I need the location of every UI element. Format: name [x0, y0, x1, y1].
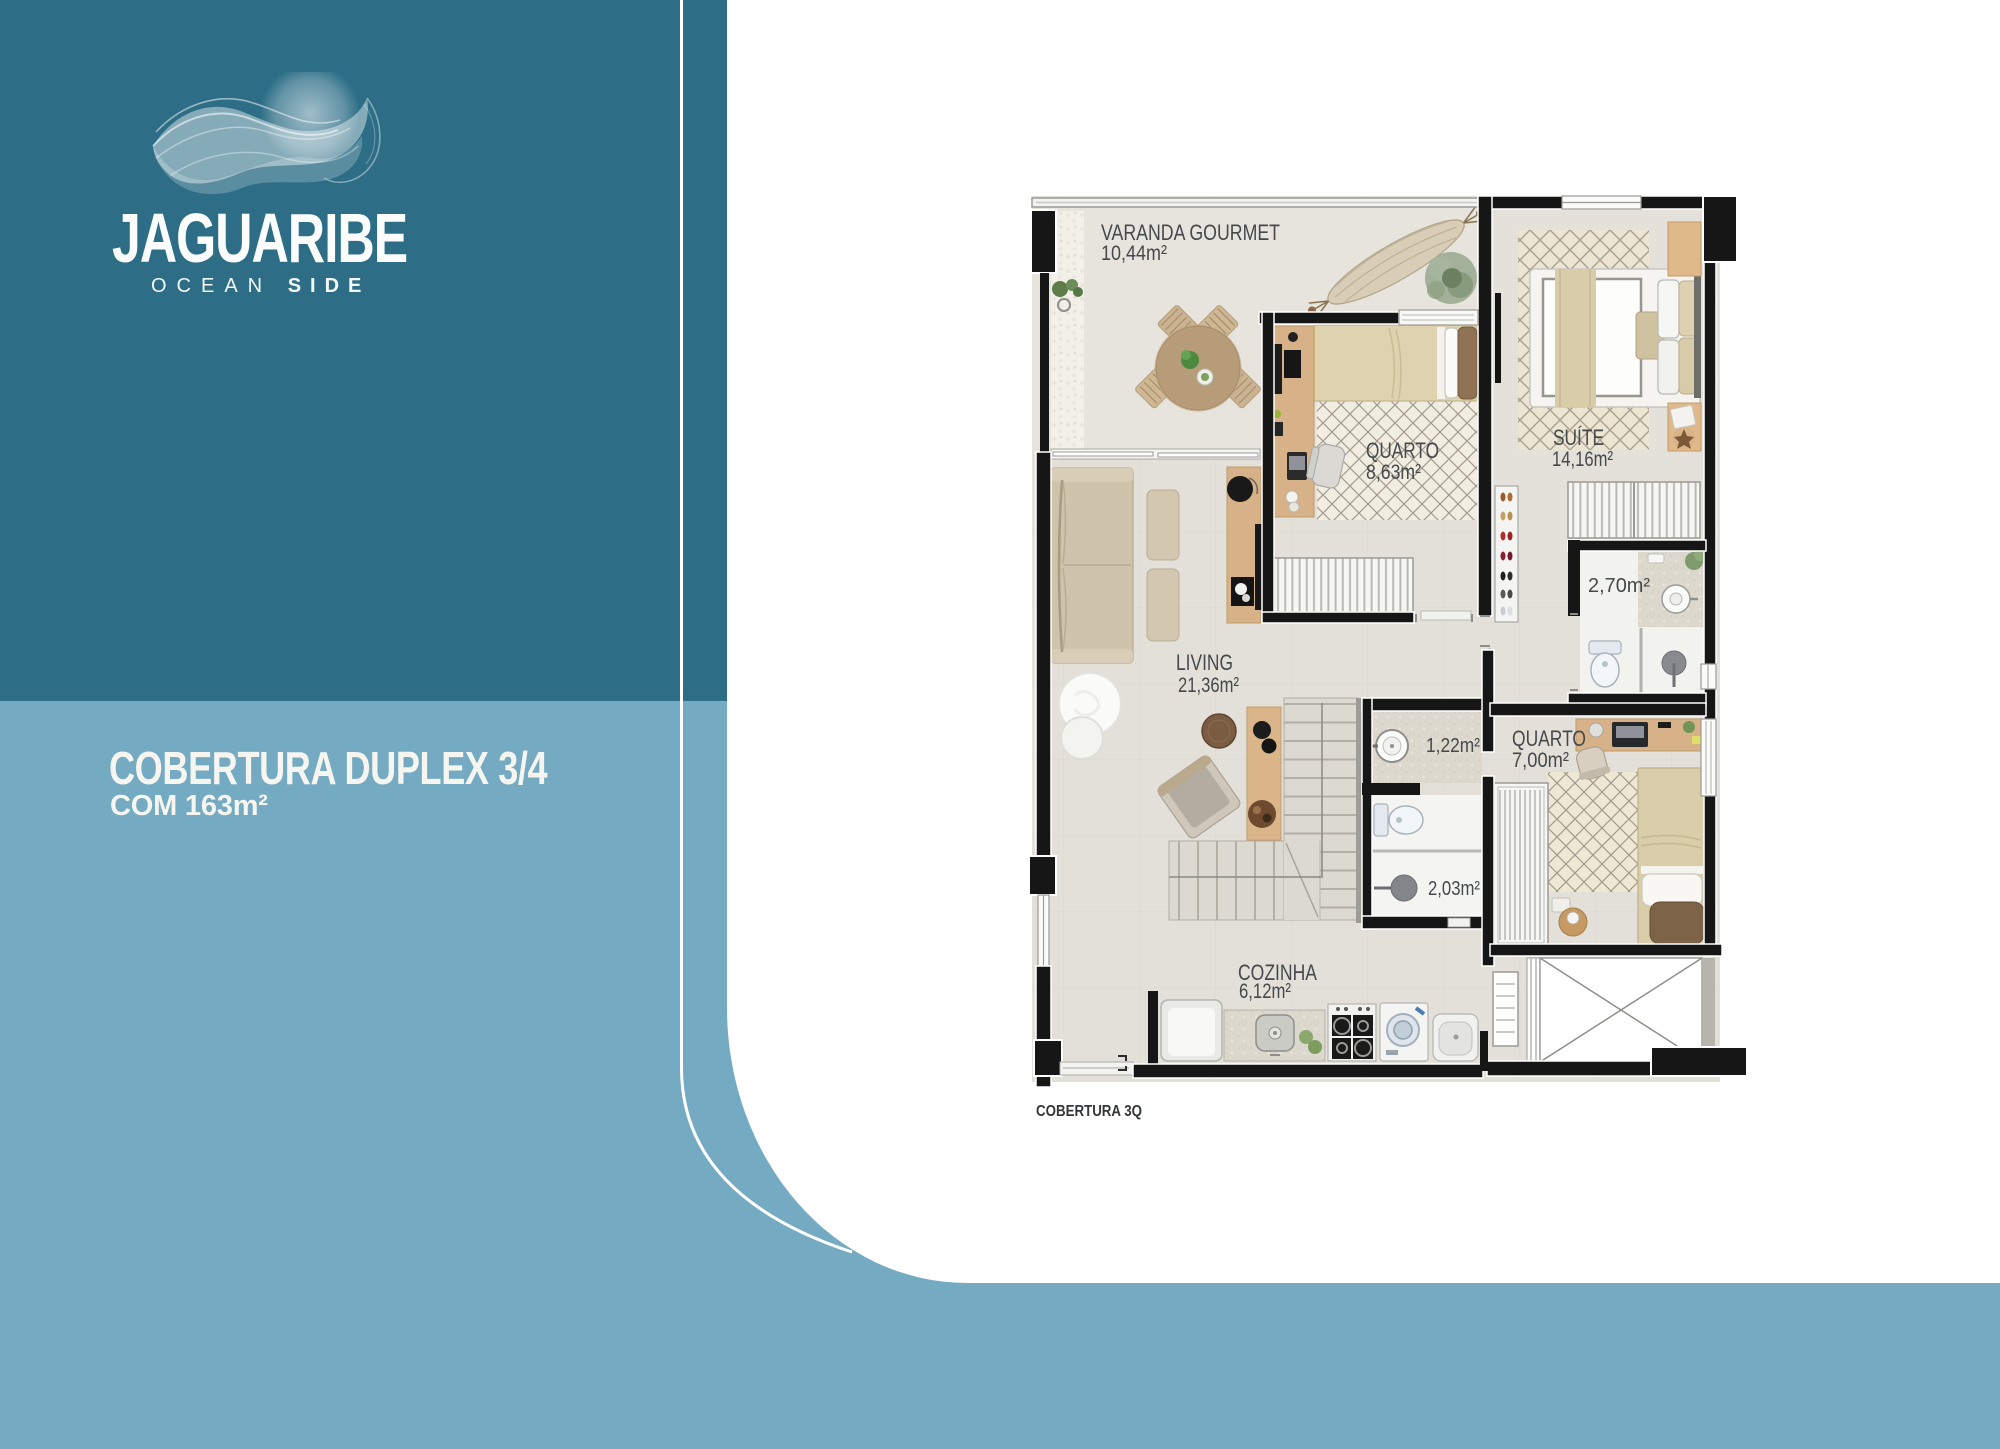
svg-text:LIVING: LIVING [1176, 650, 1233, 675]
svg-text:2,03m²: 2,03m² [1428, 878, 1480, 900]
svg-text:6,12m²: 6,12m² [1239, 980, 1291, 1003]
svg-text:21,36m²: 21,36m² [1178, 674, 1239, 697]
svg-text:QUARTO: QUARTO [1512, 726, 1586, 751]
svg-text:1,22m²: 1,22m² [1426, 735, 1480, 757]
svg-text:10,44m²: 10,44m² [1101, 242, 1167, 265]
svg-text:SUÍTE: SUÍTE [1553, 425, 1604, 450]
svg-text:7,00m²: 7,00m² [1512, 749, 1569, 772]
svg-text:8,63m²: 8,63m² [1366, 461, 1421, 484]
svg-text:14,16m²: 14,16m² [1552, 448, 1613, 471]
svg-text:COBERTURA 3Q: COBERTURA 3Q [1036, 1103, 1142, 1120]
svg-text:QUARTO: QUARTO [1366, 438, 1439, 463]
svg-text:2,70m²: 2,70m² [1588, 575, 1650, 597]
